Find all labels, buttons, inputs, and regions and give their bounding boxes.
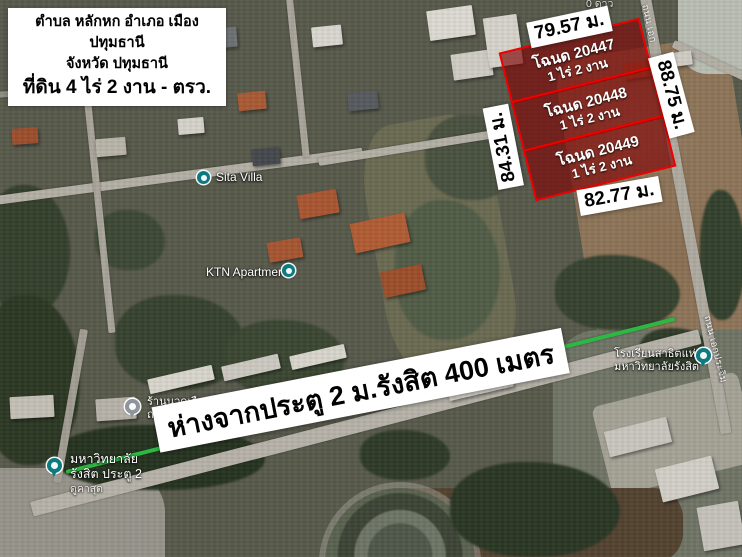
map-building [426,5,476,41]
poi-label-satit-school[interactable]: โรงเรียนสาธิตแห่ง มหาวิทยาลัยรังสิต [614,348,701,374]
map-building [177,117,204,135]
title-line-district: ตำบล หลักหก อำเภอ เมืองปทุมธานี [10,12,224,54]
poi-label-ktn-apartment[interactable]: KTN Apartment [206,266,288,279]
map-building [296,189,340,220]
poi-label-gate-line1: มหาวิทยาลัย [70,452,142,467]
poi-label-gate-line2: รังสิต ประตู 2 [70,467,142,482]
map-building [95,137,126,158]
map-building [696,501,742,552]
map-building [311,24,343,47]
map-road [286,0,310,158]
map-building [267,237,304,263]
university-gate-marker-icon[interactable] [47,458,62,473]
poi-label-sita-villa[interactable]: Sita Villa [216,171,262,184]
map-building [347,90,379,111]
title-box: ตำบล หลักหก อำเภอ เมืองปทุมธานี จังหวัด … [8,8,226,106]
map-canvas: โฉนด 20447 1 ไร่ 2 งาน โฉนด 20448 1 ไร่ … [0,0,742,557]
spa-marker-icon[interactable] [125,399,140,414]
map-trees [360,430,450,480]
title-line-province: จังหวัด ปทุมธานี [10,54,224,75]
map-building [251,147,281,167]
poi-label-school-line1: โรงเรียนสาธิตแห่ง [614,348,701,361]
map-building [9,395,54,419]
poi-label-university-gate[interactable]: มหาวิทยาลัย รังสิต ประตู 2 ดูคาสุด [70,452,142,497]
map-building [11,127,38,145]
lodging-marker-icon[interactable] [282,264,295,277]
map-trees [450,462,620,557]
title-line-land-size: ที่ดิน 4 ไร่ 2 งาน - ตรว. [10,75,224,100]
poi-label-school-line2: มหาวิทยาลัยรังสิต [614,361,701,374]
lodging-marker-icon[interactable] [197,171,210,184]
poi-label-gate-line3: ดูคาสุด [70,482,142,497]
map-trees [555,255,680,330]
map-building [237,91,267,112]
